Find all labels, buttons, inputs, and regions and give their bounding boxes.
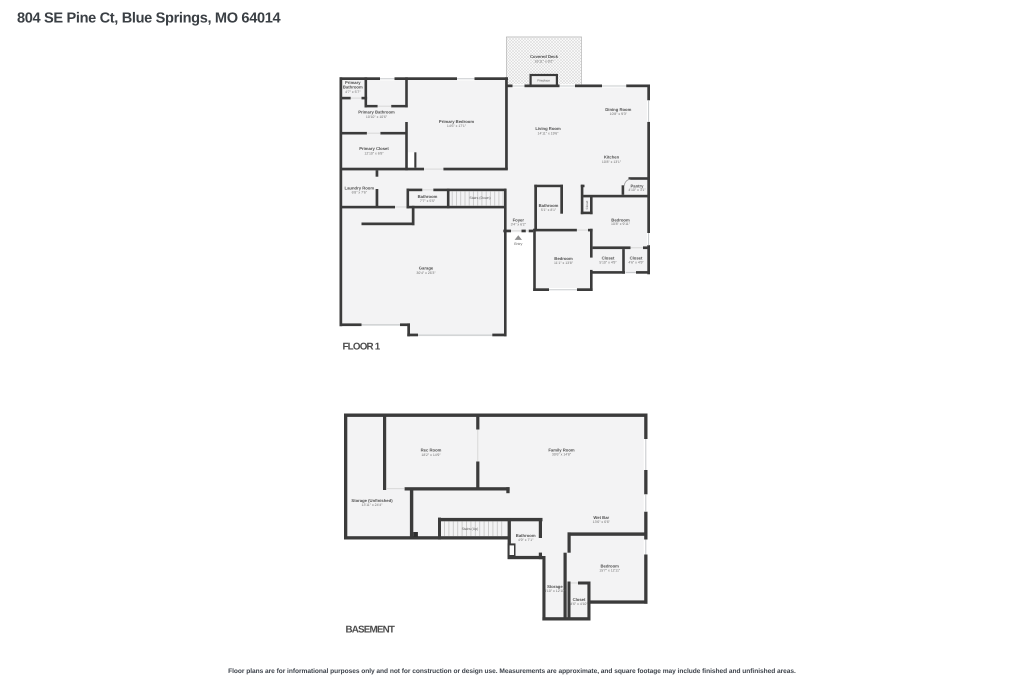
svg-text:Garage: Garage (419, 266, 434, 271)
svg-text:Primary Bathroom: Primary Bathroom (358, 110, 395, 115)
svg-text:16'11" x 9'2": 16'11" x 9'2" (535, 60, 555, 64)
svg-text:Rec Room: Rec Room (421, 448, 442, 453)
svg-text:6'8" x 7'6": 6'8" x 7'6" (352, 191, 368, 195)
svg-text:18'2" x 14'9": 18'2" x 14'9" (421, 453, 441, 457)
svg-text:Closet: Closet (573, 597, 586, 602)
svg-text:3'4" x 6'2": 3'4" x 6'2" (511, 223, 527, 227)
svg-text:10'8" x 9'3": 10'8" x 9'3" (610, 112, 628, 116)
svg-text:5'1" x 8'1": 5'1" x 8'1" (541, 208, 557, 212)
svg-text:13'11" x 24'4": 13'11" x 24'4" (362, 503, 384, 507)
svg-text:5'10" x 4'9": 5'10" x 4'9" (599, 261, 617, 265)
svg-text:13'6" x 6'6": 13'6" x 6'6" (593, 520, 611, 524)
svg-text:30'4" x 26'3": 30'4" x 26'3" (416, 271, 436, 275)
svg-text:10'8" x 13'1": 10'8" x 13'1" (602, 160, 622, 164)
svg-text:804 SE Pine Ct, Blue Springs,: 804 SE Pine Ct, Blue Springs, MO 64014 (17, 10, 282, 26)
svg-text:4'6" x 4'9": 4'6" x 4'9" (628, 261, 644, 265)
svg-text:Bathroom: Bathroom (516, 533, 536, 538)
svg-text:14'6" x 17'1": 14'6" x 17'1" (447, 124, 467, 128)
svg-text:4'9" x 7'1": 4'9" x 7'1" (518, 538, 534, 542)
svg-text:Bathroom: Bathroom (343, 85, 363, 90)
svg-text:4'7" x 5'7": 4'7" x 5'7" (345, 90, 361, 94)
svg-text:FLOOR 1: FLOOR 1 (343, 342, 381, 353)
svg-text:Laundry Room: Laundry Room (345, 185, 375, 190)
svg-text:Primary Closet: Primary Closet (359, 146, 389, 151)
svg-text:15'7" x 12'11": 15'7" x 12'11" (599, 569, 621, 573)
svg-text:14'11" x 19'6": 14'11" x 19'6" (538, 131, 560, 135)
svg-text:Covered Deck: Covered Deck (530, 54, 559, 59)
svg-text:Closet: Closet (585, 200, 589, 209)
svg-text:4'10" x 3'1": 4'10" x 3'1" (628, 188, 646, 192)
svg-text:11'1" x 13'8": 11'1" x 13'8" (554, 261, 574, 265)
svg-text:4'10" x 12'10": 4'10" x 12'10" (544, 589, 566, 593)
svg-text:10'10" x 10'6": 10'10" x 10'6" (366, 115, 388, 119)
svg-text:4'6" x 4'10": 4'6" x 4'10" (570, 602, 588, 606)
svg-text:BASEMENT: BASEMENT (346, 625, 395, 636)
svg-text:Entry: Entry (514, 242, 522, 246)
svg-text:7'7" x 5'5": 7'7" x 5'5" (420, 199, 436, 203)
svg-text:10'8" x 9'11": 10'8" x 9'11" (611, 222, 631, 226)
svg-text:Fireplace: Fireplace (537, 79, 550, 83)
svg-text:30'6" x 14'8": 30'6" x 14'8" (552, 453, 572, 457)
svg-text:Floor plans are for informatio: Floor plans are for informational purpos… (228, 668, 796, 675)
svg-text:Stairs (Up): Stairs (Up) (462, 527, 479, 531)
svg-text:Stairs (Down): Stairs (Down) (469, 196, 490, 200)
svg-text:12'10" x 6'8": 12'10" x 6'8" (364, 151, 384, 155)
